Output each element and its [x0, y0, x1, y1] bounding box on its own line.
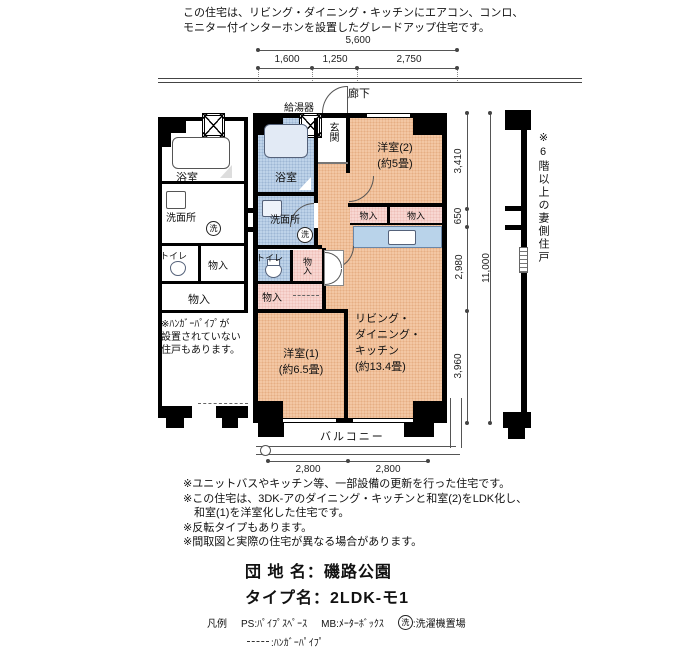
- wall: [162, 243, 246, 246]
- dim-top-seg3: 2,750: [383, 54, 435, 65]
- wall-corner-block: [253, 401, 283, 423]
- ldk-label-line1: リビング・: [355, 311, 443, 327]
- wall-corner-block: [216, 406, 248, 418]
- water-heater-label: 給湯器: [284, 99, 314, 114]
- dim-tick: [488, 421, 492, 425]
- legend-hanger-text: :ﾊﾝｶﾞｰﾊﾟｲﾌﾟ: [271, 634, 324, 649]
- ldk-label-line2: ダイニング・: [355, 327, 443, 343]
- left-note-line3: 住戸もあります。: [161, 344, 241, 357]
- closet-label: 物入: [262, 289, 282, 304]
- bottom-note-line1: ※ユニットバスやキッチン等、一部設備の更新を行った住宅です。: [183, 477, 527, 492]
- wall-corner-block: [503, 412, 531, 428]
- closet-label: 物入: [188, 291, 210, 307]
- estate-name-row: 団 地 名：磯路公園: [245, 558, 392, 582]
- entry-door-leaf: [347, 86, 348, 113]
- dim-right-seg4: 3,960: [453, 346, 465, 386]
- kitchen-sink-icon: [388, 230, 416, 245]
- legend-laundry-text: :洗濯機置場: [413, 615, 466, 630]
- wall: [258, 309, 346, 313]
- entrance-step: [318, 162, 348, 164]
- dim-right-seg3: 2,980: [454, 247, 466, 287]
- bottom-notes: ※ユニットバスやキッチン等、一部設備の更新を行った住宅です。 ※この住宅は、3D…: [183, 477, 527, 550]
- ldk-label-line3: キッチン: [355, 343, 443, 359]
- balcony-rail: [256, 446, 456, 447]
- wall-stub: [505, 206, 522, 211]
- estate-type-label: タイプ名：: [245, 590, 330, 607]
- room1-size-label: (約6.5畳): [258, 361, 344, 377]
- wall: [290, 250, 293, 281]
- dim-tick: [465, 421, 469, 425]
- header-note-line2: モニター付インターホンを設置したグレードアップ住宅です。: [183, 19, 490, 35]
- laundry-place-icon: 洗: [398, 615, 413, 630]
- wall-corner-block: [508, 428, 525, 439]
- wall-corner-block: [258, 423, 284, 437]
- meter-box-icon: [202, 113, 225, 138]
- laundry-place-icon: 洗: [206, 221, 221, 236]
- wall-hatch: [519, 247, 528, 273]
- legend-row: 凡例 PS:ﾊﾟｲﾌﾟｽﾍﾟｰｽ MB:ﾒｰﾀｰﾎﾞｯｸｽ 洗 :洗濯機置場: [207, 615, 466, 630]
- washroom-label: 洗面所: [166, 209, 196, 224]
- estate-type-row: タイプ名：2LDK-モ1: [245, 584, 409, 608]
- closet-label: 物入: [350, 207, 387, 223]
- ldk-size-label: (約13.4畳): [355, 359, 443, 375]
- wall-corner-block: [413, 113, 447, 135]
- bottom-note-line3: 和室(1)を洋室化した住宅です。: [183, 506, 527, 521]
- wall: [198, 246, 201, 281]
- room2-name-label: 洋室(2): [348, 139, 442, 155]
- dim-top-total: 5,600: [333, 35, 383, 46]
- main-unit-plan: 洗 玄関 洋室(2) (約5畳) 浴室 洗面所 トイレ 物入 物入 物入 物入 …: [253, 113, 447, 423]
- dim-tick: [465, 111, 469, 115]
- bottom-note-line2: ※この住宅は、3DK-アのダイニング・キッチンと和室(2)をLDK化し、: [183, 492, 527, 507]
- dim-tick: [488, 111, 492, 115]
- dim-line: [467, 113, 468, 423]
- wall: [258, 245, 322, 249]
- wall: [258, 192, 314, 196]
- corridor-line: [158, 78, 582, 79]
- laundry-place-icon: 洗: [297, 227, 313, 243]
- balcony-side-rail: [450, 398, 462, 448]
- hanger-pipe-dash: [247, 641, 269, 642]
- room1-name-label: 洋室(1): [258, 345, 344, 361]
- wall: [162, 310, 248, 313]
- right-gable-note: ※6階以上の妻側住戸: [535, 131, 551, 264]
- dim-bottom-seg1: 2,800: [278, 464, 338, 475]
- room2-size-label: (約5畳): [348, 155, 442, 171]
- hanger-pipe-dash: [293, 295, 319, 296]
- wall: [344, 309, 348, 418]
- wall: [162, 281, 246, 284]
- bath-label: 浴室: [258, 170, 314, 184]
- bottom-note-line4: ※反転タイプもあります。: [183, 521, 527, 536]
- wall-corner-block: [158, 406, 192, 418]
- dim-top-seg2: 1,250: [311, 54, 359, 65]
- toilet-label: トイレ: [160, 249, 187, 262]
- closet-label: 物入: [390, 207, 442, 223]
- legend-laundry: 洗 :洗濯機置場: [398, 615, 466, 630]
- balcony-rail-detail: [260, 445, 271, 456]
- wall-corner-block: [404, 423, 434, 437]
- dim-tick: [465, 225, 469, 229]
- closet-label: 物入: [300, 252, 315, 280]
- dim-bottom-seg2: 2,800: [358, 464, 418, 475]
- dim-right-total: 11,000: [481, 248, 493, 288]
- wall: [350, 223, 442, 225]
- wall-corner-block: [158, 117, 171, 147]
- dim-tick: [465, 207, 469, 211]
- legend-mb: MB:ﾒｰﾀｰﾎﾞｯｸｽ: [321, 615, 384, 630]
- wall: [442, 113, 447, 423]
- left-note-line2: 設置されていない: [161, 331, 241, 344]
- bottom-note-line5: ※間取図と実際の住宅が異なる場合があります。: [183, 535, 527, 550]
- wall-corner-block: [505, 110, 531, 130]
- washstand-icon: [166, 191, 186, 209]
- dim-tick: [346, 459, 350, 463]
- wall: [158, 117, 162, 413]
- hanger-pipe-dash: [198, 403, 248, 404]
- corridor-line: [158, 82, 582, 83]
- wall: [314, 118, 318, 203]
- dim-tick: [266, 459, 270, 463]
- left-strip-plan: 浴室 洗面所 洗 トイレ 物入 物入 ※ﾊﾝｶﾞｰﾊﾟｲﾌﾟが 設置されていない…: [158, 113, 250, 425]
- dim-tick: [426, 459, 430, 463]
- entrance-label: 玄関: [325, 122, 340, 142]
- estate-type-value: 2LDK-モ1: [330, 590, 409, 607]
- wall-corner-block: [413, 401, 447, 423]
- bathtub-icon: [264, 124, 308, 158]
- left-strip-note: ※ﾊﾝｶﾞｰﾊﾟｲﾌﾟが 設置されていない 住戸もあります。: [161, 318, 241, 357]
- floor-plan-page: この住宅は、リビング・ダイニング・キッチンにエアコン、コンロ、 モニター付インタ…: [0, 0, 700, 650]
- legend-title: 凡例: [207, 615, 227, 630]
- left-note-line1: ※ﾊﾝｶﾞｰﾊﾟｲﾌﾟが: [161, 318, 241, 331]
- wall: [162, 181, 246, 184]
- balcony-rail: [256, 454, 460, 455]
- header-note-line1: この住宅は、リビング・ダイニング・キッチンにエアコン、コンロ、: [183, 4, 523, 20]
- legend-hanger-row: :ﾊﾝｶﾞｰﾊﾟｲﾌﾟ: [247, 634, 324, 649]
- legend-ps: PS:ﾊﾟｲﾌﾟｽﾍﾟｰｽ: [241, 615, 307, 630]
- toilet-label: トイレ: [256, 251, 283, 264]
- wall-corner-block: [222, 418, 238, 428]
- estate-name-value: 磯路公園: [324, 564, 392, 581]
- window: [367, 113, 410, 118]
- washroom-label: 洗面所: [256, 212, 314, 225]
- wall-corner-block: [166, 418, 184, 428]
- entry-door-arc: [322, 86, 347, 113]
- dim-right-seg1: 3,410: [453, 141, 465, 181]
- toilet-icon: [170, 261, 186, 276]
- dim-tick: [455, 48, 459, 52]
- wall-stub: [505, 225, 522, 230]
- dim-line: [258, 50, 458, 51]
- dim-top-seg1: 1,600: [262, 54, 312, 65]
- estate-name-label: 団 地 名：: [245, 564, 324, 581]
- closet-label: 物入: [208, 257, 228, 272]
- dim-tick: [465, 309, 469, 313]
- corridor-label: 廊下: [348, 85, 370, 101]
- balcony-label: バルコニー: [320, 428, 385, 444]
- wall: [258, 281, 322, 284]
- dim-right-seg2: 650: [453, 196, 465, 236]
- bathtub-icon: [172, 137, 230, 169]
- ldk-label: リビング・ ダイニング・ キッチン (約13.4畳): [355, 311, 443, 375]
- dim-tick: [256, 48, 260, 52]
